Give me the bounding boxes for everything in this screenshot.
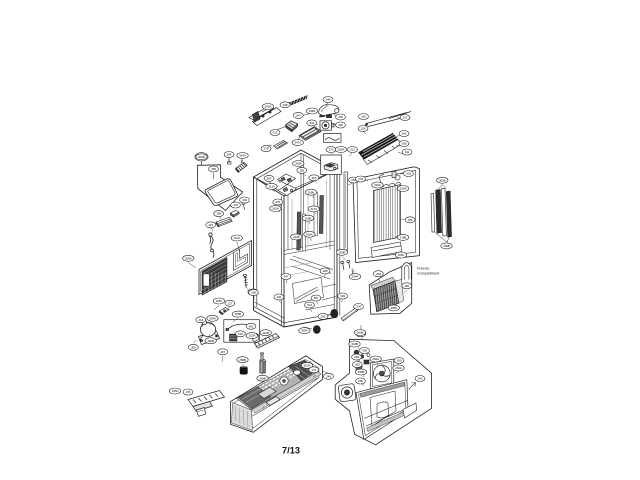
svg-text:317A: 317A <box>310 207 318 211</box>
svg-text:Freezer: Freezer <box>417 267 430 271</box>
svg-text:347A: 347A <box>294 141 302 145</box>
svg-text:343A: 343A <box>239 154 247 158</box>
svg-text:263A: 263A <box>272 207 280 211</box>
svg-text:294A: 294A <box>352 275 360 279</box>
svg-text:316: 316 <box>361 115 366 119</box>
svg-text:228: 228 <box>376 272 381 276</box>
svg-text:303: 303 <box>406 172 411 176</box>
svg-text:155: 155 <box>186 390 191 394</box>
svg-text:390A: 390A <box>301 329 309 333</box>
svg-text:347: 347 <box>296 114 301 118</box>
svg-text:329A: 329A <box>295 162 303 166</box>
svg-text:318B: 318B <box>400 236 407 240</box>
svg-text:127: 127 <box>228 301 233 305</box>
svg-text:165A: 165A <box>216 299 224 303</box>
svg-text:276: 276 <box>275 200 280 204</box>
svg-text:318A: 318A <box>308 190 316 194</box>
svg-text:295A: 295A <box>185 256 193 260</box>
svg-text:305: 305 <box>402 132 407 136</box>
svg-text:378: 378 <box>264 147 269 151</box>
svg-text:311: 311 <box>405 150 410 154</box>
svg-text:296: 296 <box>418 377 423 381</box>
svg-text:403B: 403B <box>351 342 358 346</box>
svg-text:348A: 348A <box>309 109 317 113</box>
svg-text:329: 329 <box>338 123 343 127</box>
svg-text:340: 340 <box>242 198 247 202</box>
svg-text:305A: 305A <box>265 105 273 109</box>
svg-text:339: 339 <box>355 363 360 367</box>
svg-text:295: 295 <box>358 379 363 383</box>
svg-text:356: 356 <box>211 167 216 171</box>
svg-text:155A: 155A <box>172 389 180 393</box>
svg-text:415: 415 <box>208 223 213 227</box>
svg-text:309: 309 <box>191 345 196 349</box>
svg-text:326: 326 <box>361 127 366 131</box>
svg-text:300B: 300B <box>339 250 346 254</box>
svg-text:246: 246 <box>277 295 282 299</box>
svg-text:348: 348 <box>283 103 288 107</box>
svg-text:328A: 328A <box>400 187 408 191</box>
svg-text:160B: 160B <box>207 339 214 343</box>
svg-text:247: 247 <box>284 275 289 279</box>
svg-text:295B: 295B <box>358 370 365 374</box>
svg-text:279: 279 <box>358 177 363 181</box>
svg-text:249: 249 <box>326 374 331 378</box>
svg-text:301B: 301B <box>198 155 205 159</box>
svg-text:510: 510 <box>238 332 243 336</box>
svg-text:403: 403 <box>249 324 254 328</box>
svg-text:649: 649 <box>340 294 345 298</box>
svg-text:287: 287 <box>267 177 272 181</box>
svg-text:414: 414 <box>198 318 203 322</box>
svg-text:304A: 304A <box>209 316 217 320</box>
svg-text:387: 387 <box>314 296 319 300</box>
svg-text:503A: 503A <box>304 364 312 368</box>
svg-text:312B: 312B <box>293 235 300 239</box>
svg-text:306: 306 <box>299 169 304 173</box>
svg-text:396: 396 <box>404 284 409 288</box>
svg-text:344: 344 <box>326 98 331 102</box>
svg-text:313: 313 <box>273 131 278 135</box>
svg-text:316A: 316A <box>374 183 382 187</box>
svg-text:210B: 210B <box>262 331 269 335</box>
svg-text:284: 284 <box>227 153 232 157</box>
svg-text:318: 318 <box>311 176 316 180</box>
svg-text:503B: 503B <box>357 331 364 335</box>
svg-text:308: 308 <box>402 142 407 146</box>
svg-text:269A: 269A <box>372 357 380 361</box>
svg-text:269: 269 <box>397 359 402 363</box>
svg-text:230A: 230A <box>395 366 403 370</box>
svg-text:305B: 305B <box>439 178 446 182</box>
svg-text:329B: 329B <box>305 216 312 220</box>
svg-text:518A: 518A <box>306 232 314 236</box>
svg-text:270: 270 <box>233 203 238 207</box>
svg-text:407: 407 <box>220 350 225 354</box>
svg-text:7/13: 7/13 <box>282 445 300 455</box>
svg-text:305C: 305C <box>398 253 406 257</box>
svg-text:330: 330 <box>338 115 343 119</box>
svg-text:158: 158 <box>216 212 221 216</box>
svg-text:514: 514 <box>307 303 312 307</box>
svg-text:305D: 305D <box>390 306 398 310</box>
svg-text:311A: 311A <box>268 185 275 189</box>
svg-text:288: 288 <box>323 269 328 273</box>
svg-text:270: 270 <box>329 148 334 152</box>
svg-text:317: 317 <box>403 116 408 120</box>
svg-text:306B: 306B <box>235 312 242 316</box>
svg-text:390: 390 <box>321 315 326 319</box>
svg-text:288B: 288B <box>239 358 246 362</box>
svg-text:312A: 312A <box>249 334 257 338</box>
svg-text:283: 283 <box>354 355 359 359</box>
svg-text:283B: 283B <box>259 376 266 380</box>
svg-text:406: 406 <box>362 349 367 353</box>
svg-text:310A: 310A <box>233 236 241 240</box>
svg-text:328: 328 <box>408 218 413 222</box>
svg-text:294: 294 <box>356 305 361 309</box>
svg-text:330B: 330B <box>443 244 450 248</box>
svg-text:306A: 306A <box>338 148 346 152</box>
svg-text:Compartment: Compartment <box>417 271 439 275</box>
svg-text:250: 250 <box>251 291 256 295</box>
svg-text:274: 274 <box>311 368 316 372</box>
svg-text:342: 342 <box>309 121 314 125</box>
svg-text:312: 312 <box>350 148 355 152</box>
